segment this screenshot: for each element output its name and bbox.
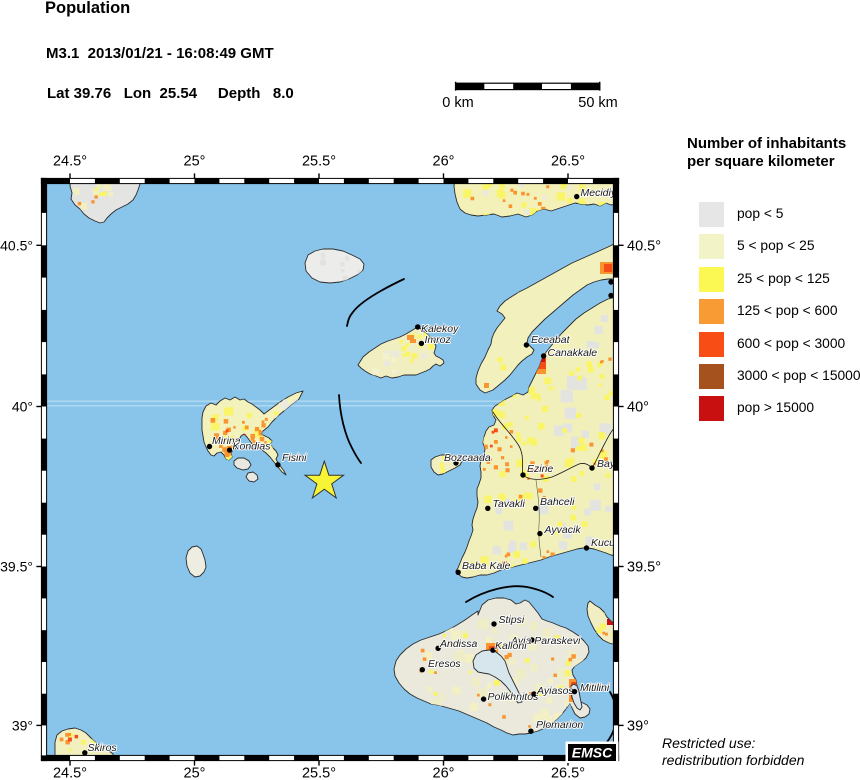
svg-text:Andissa: Andissa bbox=[439, 638, 478, 650]
svg-text:26.5°: 26.5° bbox=[551, 766, 585, 780]
svg-text:Ayiasos: Ayiasos bbox=[536, 685, 574, 697]
svg-text:25°: 25° bbox=[184, 766, 206, 780]
svg-text:Bozcaada: Bozcaada bbox=[444, 452, 491, 464]
svg-text:Canakkale: Canakkale bbox=[548, 347, 598, 359]
svg-text:26.5°: 26.5° bbox=[551, 154, 585, 170]
svg-text:Plomarion: Plomarion bbox=[536, 719, 583, 731]
svg-text:24.5°: 24.5° bbox=[53, 154, 87, 170]
svg-text:26°: 26° bbox=[433, 766, 455, 780]
svg-text:Baba Kale: Baba Kale bbox=[462, 560, 511, 572]
svg-text:Tavakli: Tavakli bbox=[493, 498, 526, 510]
svg-text:39.5°: 39.5° bbox=[627, 560, 661, 576]
svg-text:40°: 40° bbox=[12, 399, 33, 415]
svg-text:Fisini: Fisini bbox=[282, 452, 307, 464]
svg-text:0 km: 0 km bbox=[442, 95, 473, 111]
svg-text:40°: 40° bbox=[627, 400, 649, 416]
svg-text:39°: 39° bbox=[627, 718, 649, 734]
svg-text:39.5°: 39.5° bbox=[0, 559, 33, 575]
svg-text:EMSC: EMSC bbox=[572, 745, 613, 761]
svg-text:Polikhnitos: Polikhnitos bbox=[488, 691, 540, 703]
svg-text:Mitilini: Mitilini bbox=[580, 682, 610, 694]
svg-text:Eresos: Eresos bbox=[428, 658, 461, 670]
svg-text:Kondias: Kondias bbox=[233, 441, 272, 453]
svg-text:50 km: 50 km bbox=[578, 95, 618, 111]
svg-text:Bahceli: Bahceli bbox=[540, 496, 575, 508]
svg-text:40.5°: 40.5° bbox=[0, 237, 33, 253]
svg-text:40.5°: 40.5° bbox=[627, 238, 661, 254]
svg-text:Skiros: Skiros bbox=[88, 742, 118, 754]
svg-text:26°: 26° bbox=[433, 154, 455, 170]
svg-text:24.5°: 24.5° bbox=[53, 766, 87, 780]
svg-text:Stipsi: Stipsi bbox=[499, 614, 525, 626]
svg-text:Imroz: Imroz bbox=[425, 334, 452, 346]
svg-text:25.5°: 25.5° bbox=[302, 766, 336, 780]
svg-text:39°: 39° bbox=[12, 717, 33, 733]
svg-text:Bayramic: Bayramic bbox=[597, 458, 642, 470]
svg-text:25.5°: 25.5° bbox=[302, 154, 336, 170]
svg-text:Kalloni: Kalloni bbox=[495, 640, 527, 652]
svg-text:Eceabat: Eceabat bbox=[531, 334, 571, 346]
svg-text:25°: 25° bbox=[184, 154, 206, 170]
svg-text:Ayvacik: Ayvacik bbox=[544, 524, 582, 536]
svg-text:Ezine: Ezine bbox=[527, 463, 553, 475]
